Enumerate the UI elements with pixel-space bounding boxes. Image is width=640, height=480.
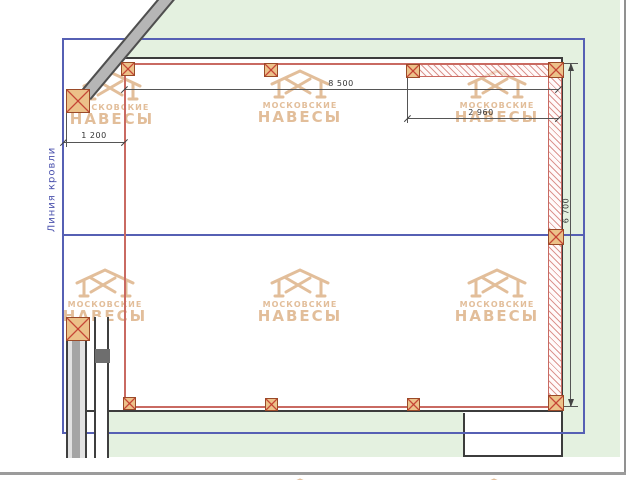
canopy-logo-icon [464, 476, 524, 480]
site-divider-bottom [463, 455, 563, 457]
canopy-logo-icon [270, 476, 330, 480]
cad-drawing-canvas: МОСКОВСКИЕ НАВЕСЫ МОСКОВСКИЕ НАВЕСЫ МОСК… [0, 0, 640, 480]
roof-line-label: Линия кровли [47, 144, 58, 236]
watermark-logo: МОСКОВСКИЕ НАВЕСЫ [245, 476, 355, 480]
column-marker-post [407, 398, 420, 411]
watermark-logo: МОСКОВСКИЕ НАВЕСЫ [439, 476, 549, 480]
fence-post-block [95, 349, 110, 363]
dim-text-8500: 8 500 [316, 79, 366, 88]
canopy-edge-left [124, 63, 126, 408]
column-marker-post [406, 64, 420, 78]
fence-section-second [94, 317, 109, 458]
column-marker-post [265, 398, 278, 411]
dim-ext-1200 [66, 112, 67, 147]
roof-line-middle [62, 234, 583, 236]
column-marker-post [264, 63, 278, 77]
dim-text-1200: 1 200 [69, 131, 119, 140]
page-edge-right [624, 0, 626, 474]
column-marker-post [123, 397, 136, 410]
dim-line-2960 [407, 118, 558, 119]
column-marker-post-corner [548, 62, 564, 78]
column-marker-post-large [66, 317, 90, 341]
dim-text-2960: 2 960 [456, 108, 506, 117]
column-marker-post-large [66, 89, 90, 113]
canopy-wall-top-hatched [418, 64, 550, 77]
dim-line-8500 [124, 89, 558, 90]
roof-line-boundary [62, 38, 585, 434]
dim-text-6700: 6 700 [562, 186, 571, 236]
column-marker-post-corner [548, 395, 564, 411]
fence-section-core [72, 338, 80, 458]
canopy-edge-bottom [124, 406, 561, 408]
page-edge-bottom [0, 472, 626, 475]
column-marker-post [121, 62, 135, 76]
dim-line-1200 [63, 142, 124, 143]
